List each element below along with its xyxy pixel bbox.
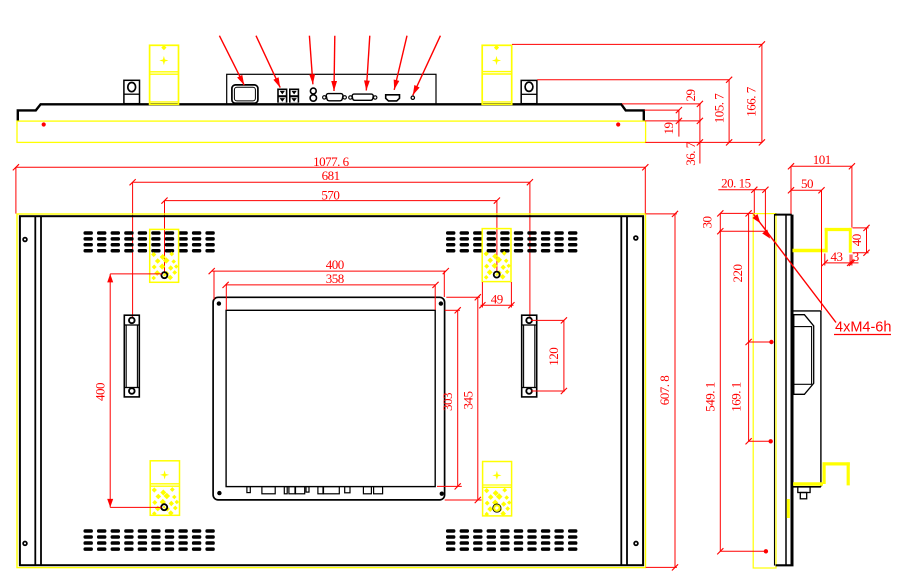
svg-text:29: 29 [683,90,698,102]
svg-text:120: 120 [546,348,561,366]
svg-text:4xM4-6h: 4xM4-6h [835,320,891,336]
svg-text:166. 7: 166. 7 [744,86,759,117]
svg-text:681: 681 [322,168,340,183]
svg-text:1077. 6: 1077. 6 [313,154,350,169]
svg-text:400: 400 [92,383,107,401]
svg-text:105. 7: 105. 7 [711,93,726,124]
svg-text:101: 101 [813,152,831,167]
svg-text:30: 30 [700,217,715,229]
svg-text:220: 220 [730,265,745,283]
svg-text:49: 49 [491,291,503,306]
svg-text:20. 15: 20. 15 [721,176,751,191]
svg-text:570: 570 [321,187,339,202]
svg-text:303: 303 [440,393,455,411]
svg-text:169. 1: 169. 1 [728,382,743,412]
svg-text:19: 19 [661,123,676,135]
svg-text:36. 7: 36. 7 [683,141,698,166]
svg-text:40: 40 [849,234,864,246]
svg-text:43: 43 [831,249,843,264]
svg-text:400: 400 [326,257,344,272]
svg-text:3: 3 [853,249,859,264]
svg-text:607. 8: 607. 8 [657,376,672,406]
svg-text:358: 358 [326,271,344,286]
svg-text:50: 50 [801,176,813,191]
svg-text:345: 345 [460,392,475,410]
svg-text:549. 1: 549. 1 [703,382,718,412]
